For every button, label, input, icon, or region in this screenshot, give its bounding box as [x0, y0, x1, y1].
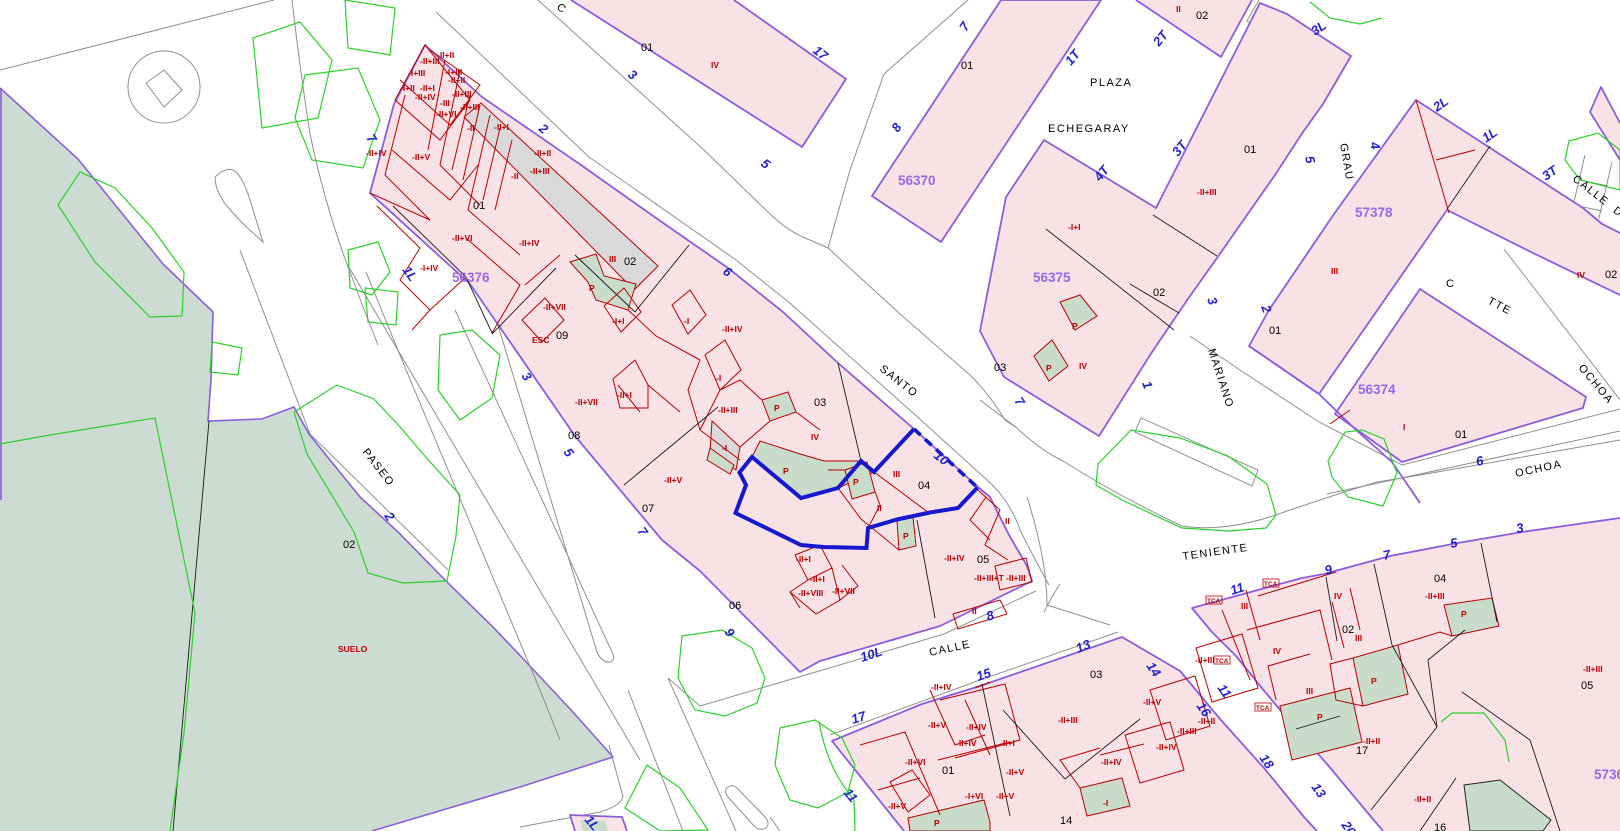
svg-text:-II+IV: -II+IV	[966, 722, 987, 732]
svg-text:01: 01	[641, 42, 653, 54]
svg-text:III: III	[1355, 633, 1362, 643]
svg-text:01: 01	[1244, 144, 1256, 156]
svg-text:5736: 5736	[1594, 767, 1620, 782]
svg-text:02: 02	[343, 539, 355, 551]
svg-text:-II+VIII: -II+VIII	[798, 588, 823, 598]
svg-text:-II+II: -II+II	[534, 148, 551, 158]
svg-text:-I+I: -I+I	[612, 316, 625, 326]
svg-text:-II+V: -II+V	[664, 475, 683, 485]
svg-text:III: III	[893, 469, 900, 479]
svg-text:03: 03	[994, 362, 1006, 374]
svg-text:56375: 56375	[1033, 270, 1071, 285]
svg-text:-II+IV: -II+IV	[1101, 757, 1122, 767]
svg-text:-I+III: -I+III	[408, 68, 425, 78]
svg-text:09: 09	[556, 330, 568, 342]
svg-text:56376: 56376	[452, 270, 490, 285]
svg-text:TCA: TCA	[1256, 705, 1270, 712]
svg-text:SUELO: SUELO	[338, 644, 368, 654]
svg-text:-II+III+T: -II+III+T	[974, 573, 1005, 583]
svg-text:01: 01	[942, 765, 954, 777]
svg-text:-I: -I	[722, 443, 727, 453]
svg-text:-II+V: -II+V	[888, 801, 907, 811]
svg-text:01: 01	[1455, 429, 1467, 441]
svg-text:P: P	[589, 283, 595, 293]
svg-text:P: P	[1317, 712, 1323, 722]
svg-text:56370: 56370	[898, 173, 936, 188]
svg-text:III: III	[1306, 686, 1313, 696]
svg-text:III: III	[609, 254, 616, 264]
svg-text:P: P	[853, 477, 859, 487]
svg-text:-II+III: -II+III	[1197, 187, 1217, 197]
svg-text:-II+I: -II+I	[617, 390, 632, 400]
svg-text:-I+IV: -I+IV	[420, 263, 439, 273]
svg-text:II: II	[877, 503, 882, 513]
svg-text:II: II	[1005, 516, 1010, 526]
svg-text:04: 04	[1434, 573, 1446, 585]
svg-text:03: 03	[1090, 669, 1102, 681]
svg-text:-I: -I	[716, 373, 721, 383]
svg-text:-II+V: -II+V	[928, 720, 947, 730]
svg-text:-II+I: -II+I	[1000, 738, 1015, 748]
svg-text:04: 04	[918, 480, 930, 492]
svg-text:P: P	[1461, 609, 1467, 619]
svg-text:-II+IV: -II+IV	[366, 148, 387, 158]
svg-text:17: 17	[1356, 745, 1368, 757]
svg-text:-II+V: -II+V	[996, 791, 1015, 801]
svg-text:-II+V: -II+V	[1006, 767, 1025, 777]
svg-text:IV: IV	[1334, 591, 1342, 601]
svg-text:II: II	[972, 606, 977, 616]
svg-text:IV: IV	[1577, 270, 1585, 280]
svg-text:-II+IV: -II+IV	[519, 238, 540, 248]
svg-text:-II+I: -II+I	[796, 554, 811, 564]
svg-text:06: 06	[729, 600, 741, 612]
svg-text:05: 05	[977, 554, 989, 566]
svg-text:-I+I: -I+I	[1068, 222, 1081, 232]
svg-text:-II+II: -II+II	[1414, 794, 1431, 804]
svg-text:16: 16	[1434, 822, 1446, 831]
svg-text:-II+III: -II+III	[718, 405, 738, 415]
svg-text:III: III	[1241, 601, 1248, 611]
svg-text:IV: IV	[711, 60, 719, 70]
svg-text:ESC: ESC	[532, 335, 549, 345]
svg-text:-II+VII: -II+VII	[575, 397, 598, 407]
svg-text:-II+III: -II+III	[530, 166, 550, 176]
svg-text:-I: -I	[684, 316, 689, 326]
svg-text:P: P	[774, 403, 780, 413]
svg-text:P: P	[783, 466, 789, 476]
svg-text:-II+VI: -II+VI	[905, 757, 926, 767]
svg-text:01: 01	[961, 60, 973, 72]
svg-text:IV: IV	[1273, 646, 1281, 656]
svg-text:P: P	[934, 818, 940, 828]
svg-text:-II+IV: -II+IV	[415, 92, 436, 102]
svg-text:TCA: TCA	[1215, 658, 1229, 665]
svg-text:02: 02	[1605, 269, 1617, 281]
svg-text:-II+IV: -II+IV	[956, 738, 977, 748]
svg-text:-II+V: -II+V	[412, 152, 431, 162]
svg-text:-II+IV: -II+IV	[1156, 742, 1177, 752]
svg-text:-I+VI: -I+VI	[965, 791, 983, 801]
svg-text:08: 08	[568, 430, 580, 442]
svg-text:02: 02	[1196, 10, 1208, 22]
svg-text:-II+II: -II+II	[1363, 736, 1380, 746]
svg-text:P: P	[903, 531, 909, 541]
svg-text:-II+VI: -II+VI	[436, 109, 457, 119]
svg-text:01: 01	[473, 200, 485, 212]
svg-text:-II+II: -II+II	[437, 50, 454, 60]
svg-text:14: 14	[1060, 815, 1072, 827]
svg-text:TCA: TCA	[1207, 598, 1221, 605]
svg-text:56374: 56374	[1358, 382, 1396, 397]
svg-text:-II+VII: -II+VII	[832, 586, 855, 596]
svg-text:-II: -II	[467, 123, 475, 133]
svg-text:-II+VI: -II+VI	[452, 233, 473, 243]
svg-text:-III: -III	[440, 98, 450, 108]
svg-text:-II+IV: -II+IV	[722, 324, 743, 334]
svg-text:C: C	[1446, 278, 1454, 290]
svg-text:-II: -II	[511, 171, 519, 181]
svg-text:-II+III: -II+III	[1058, 715, 1078, 725]
svg-text:I: I	[1403, 422, 1405, 432]
svg-text:III: III	[1331, 266, 1338, 276]
svg-text:-II+III: -II+III	[460, 102, 480, 112]
svg-text:-II+III: -II+III	[1583, 664, 1603, 674]
svg-text:-I+II: -I+II	[400, 83, 415, 93]
svg-text:P: P	[1371, 676, 1377, 686]
svg-text:TCA: TCA	[1264, 581, 1278, 588]
svg-text:02: 02	[624, 256, 636, 268]
svg-text:II: II	[1176, 4, 1181, 14]
svg-text:-II+I: -II+I	[494, 122, 509, 132]
svg-text:-II+III: -II+III	[1177, 726, 1197, 736]
svg-text:-II+III: -II+III	[1425, 591, 1445, 601]
svg-text:-II+III: -II+III	[1006, 573, 1026, 583]
svg-text:-II+I: -II+I	[420, 83, 435, 93]
svg-text:-II+III: -II+III	[1195, 655, 1215, 665]
svg-text:IV: IV	[811, 432, 819, 442]
svg-text:03: 03	[814, 397, 826, 409]
svg-text:PLAZA: PLAZA	[1090, 77, 1132, 89]
svg-text:-II+IV: -II+IV	[944, 553, 965, 563]
svg-text:07: 07	[642, 503, 654, 515]
svg-text:-II+IV: -II+IV	[931, 682, 952, 692]
svg-text:P: P	[1046, 363, 1052, 373]
svg-text:-II+I: -II+I	[810, 574, 825, 584]
svg-text:02: 02	[1153, 287, 1165, 299]
svg-text:-II+III: -II+III	[452, 89, 472, 99]
svg-text:-II+V: -II+V	[1143, 697, 1162, 707]
svg-text:-II+II: -II+II	[1198, 716, 1215, 726]
svg-text:57378: 57378	[1355, 205, 1393, 220]
svg-text:-II+VII: -II+VII	[543, 302, 566, 312]
svg-text:02: 02	[1342, 624, 1354, 636]
svg-text:ECHEGARAY: ECHEGARAY	[1048, 123, 1130, 135]
svg-text:IV: IV	[1079, 361, 1087, 371]
svg-text:-II+II: -II+II	[448, 75, 465, 85]
svg-text:01: 01	[1269, 325, 1281, 337]
svg-text:P: P	[1072, 321, 1078, 331]
svg-text:05: 05	[1581, 680, 1593, 692]
svg-text:-I: -I	[1103, 798, 1108, 808]
